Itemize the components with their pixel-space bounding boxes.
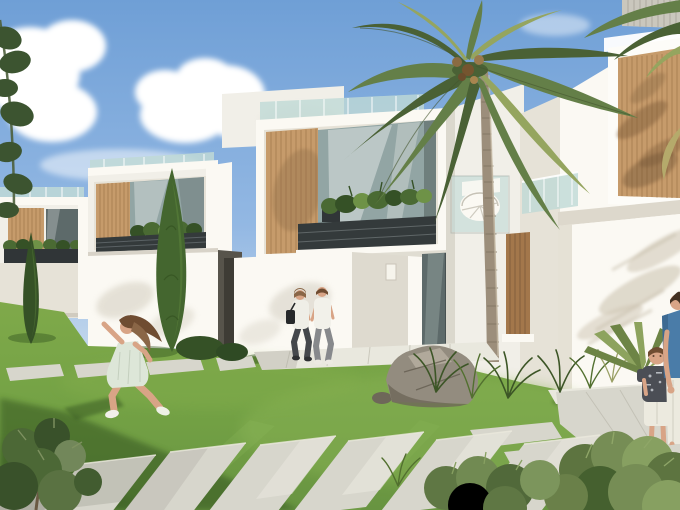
base-shrub	[176, 336, 224, 360]
scene-architectural-render	[0, 0, 680, 510]
rendered-photo	[0, 0, 680, 510]
base-shrub	[216, 343, 248, 361]
held-hands	[668, 387, 675, 394]
